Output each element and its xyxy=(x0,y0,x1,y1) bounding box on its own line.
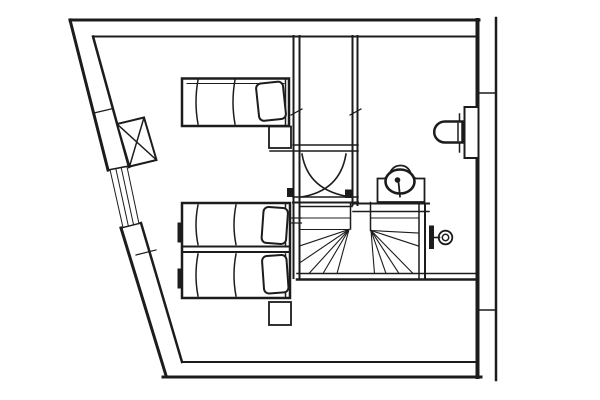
outer-walls-shape xyxy=(108,166,129,170)
window-slanted-wall-shape xyxy=(116,169,129,227)
party-wall xyxy=(479,18,496,380)
window-slanted-wall-shape xyxy=(110,170,123,228)
toilet-shape xyxy=(465,107,479,158)
outer-walls-shape xyxy=(94,109,113,114)
floor-plan-canvas xyxy=(0,0,600,400)
nightstands-shape xyxy=(269,302,291,325)
outer-walls-shape xyxy=(141,223,182,362)
wash-basin xyxy=(378,166,425,203)
twin-beds-shape xyxy=(178,223,183,243)
double-leaf-door-shape xyxy=(301,154,346,197)
nightstands-shape xyxy=(269,127,291,149)
window-slanted-wall-shape xyxy=(121,168,133,226)
stair-door-handle-shape xyxy=(442,234,448,240)
wash-basin-shape xyxy=(395,177,401,183)
twin-beds-shape xyxy=(262,255,289,294)
single-bed-shape xyxy=(256,81,287,121)
chimney-x-box xyxy=(117,118,157,167)
outer-walls-shape xyxy=(121,223,141,228)
outer-walls-shape xyxy=(136,250,156,255)
outer-walls-shape xyxy=(70,20,108,170)
floor-plan-page xyxy=(0,0,600,400)
window-slanted-wall-shape xyxy=(127,166,139,223)
double-leaf-door xyxy=(287,154,352,198)
twin-beds-shape xyxy=(178,269,183,289)
winder-staircase-shape xyxy=(323,230,349,274)
double-leaf-door-shape xyxy=(302,154,351,197)
window-slanted-wall xyxy=(110,166,139,227)
twin-beds-shape xyxy=(261,207,288,245)
winder-staircase-shape xyxy=(371,231,399,274)
twin-beds xyxy=(178,203,291,298)
single-bed xyxy=(182,79,289,127)
stair-door-handle xyxy=(429,226,452,250)
winder-staircase xyxy=(297,203,477,280)
outer-walls-shape xyxy=(121,228,166,376)
double-leaf-door-shape xyxy=(345,190,352,199)
stair-door-handle-shape xyxy=(439,231,453,245)
toilet xyxy=(434,107,478,158)
double-leaf-door-shape xyxy=(287,188,293,197)
